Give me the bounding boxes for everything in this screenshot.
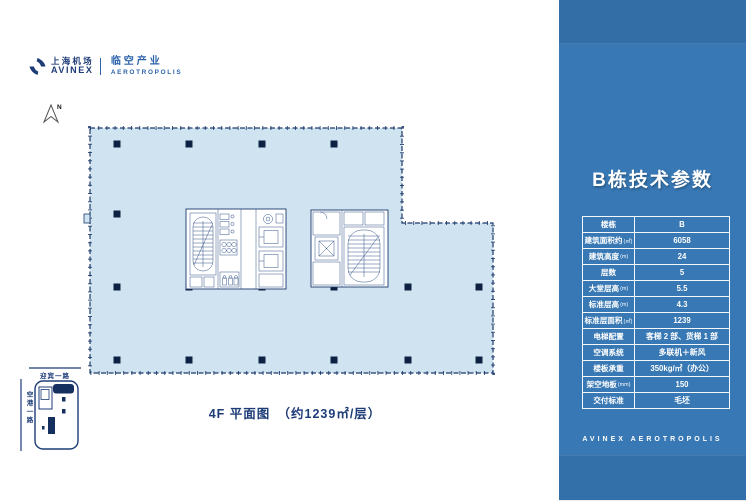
spec-value: 4.3 bbox=[635, 297, 729, 312]
spec-label: 标准层面积(㎡) bbox=[583, 313, 635, 328]
spec-row: 大堂层高(m)5.5 bbox=[583, 281, 729, 297]
spec-value: B bbox=[635, 217, 729, 232]
spec-label: 建筑高度(m) bbox=[583, 249, 635, 264]
core-right bbox=[311, 210, 388, 287]
spec-label: 架空地板(mm) bbox=[583, 377, 635, 392]
panel-top-band bbox=[559, 0, 746, 44]
brand-division-en: AEROTROPOLIS bbox=[111, 70, 183, 77]
brand-logo: 上海机场 AVINEX 临空产业 AEROTROPOLIS bbox=[28, 57, 182, 76]
spec-row: 架空地板(mm)150 bbox=[583, 377, 729, 393]
spec-label: 建筑面积约(㎡) bbox=[583, 233, 635, 248]
north-label: N bbox=[57, 104, 62, 111]
spec-unit: (mm) bbox=[618, 382, 631, 388]
spec-unit: (m) bbox=[620, 302, 628, 308]
floor-plan bbox=[80, 115, 500, 385]
spec-label: 楼栋 bbox=[583, 217, 635, 232]
avinex-diamond-icon bbox=[28, 57, 47, 76]
spec-row: 层数5 bbox=[583, 265, 729, 281]
spec-label: 交付标准 bbox=[583, 393, 635, 408]
spec-row: 电梯配置客梯 2 部、货梯 1 部 bbox=[583, 329, 729, 345]
building-c-block bbox=[48, 417, 55, 434]
entrance-notch bbox=[84, 214, 90, 223]
spec-unit: (㎡) bbox=[623, 317, 632, 325]
north-arrow-icon: N bbox=[36, 99, 66, 134]
spec-row: 建筑高度(m)24 bbox=[583, 249, 729, 265]
spec-row: 标准层面积(㎡)1239 bbox=[583, 313, 729, 329]
core-left bbox=[186, 209, 286, 289]
panel-bottom-band bbox=[559, 455, 746, 501]
spec-value: 24 bbox=[635, 249, 729, 264]
spec-value: 150 bbox=[635, 377, 729, 392]
building-b-highlight bbox=[53, 384, 74, 394]
spec-value: 5 bbox=[635, 265, 729, 280]
spec-row: 楼板承重350kg/㎡（办公） bbox=[583, 361, 729, 377]
road-top-label: 迎宾一路 bbox=[30, 370, 80, 380]
plan-caption: 4F 平面图 （约1239㎡/层） bbox=[130, 403, 460, 422]
spec-row: 建筑面积约(㎡)6058 bbox=[583, 233, 729, 249]
spec-value: 6058 bbox=[635, 233, 729, 248]
spec-label: 电梯配置 bbox=[583, 329, 635, 344]
spec-unit: (m) bbox=[620, 286, 628, 292]
spec-label: 标准层高(m) bbox=[583, 297, 635, 312]
spec-value: 1239 bbox=[635, 313, 729, 328]
spec-label: 大堂层高(m) bbox=[583, 281, 635, 296]
panel-footer: AVINEX AEROTROPOLIS bbox=[559, 436, 746, 443]
floor-slab bbox=[90, 128, 493, 373]
spec-unit: (m) bbox=[620, 254, 628, 260]
spec-unit: (㎡) bbox=[623, 237, 632, 245]
brand-en-name: AVINEX bbox=[51, 66, 94, 75]
spec-row: 楼栋B bbox=[583, 217, 729, 233]
spec-panel: B栋技术参数 楼栋B建筑面积约(㎡)6058建筑高度(m)24层数5大堂层高(m… bbox=[559, 0, 746, 500]
spec-row: 标准层高(m)4.3 bbox=[583, 297, 729, 313]
spec-value: 5.5 bbox=[635, 281, 729, 296]
site-map: 迎宾一路 空港一路 bbox=[14, 360, 84, 460]
road-left-label: 空港一路 bbox=[23, 391, 33, 425]
spec-value: 多联机＋新风 bbox=[635, 345, 729, 360]
spec-row: 空调系统多联机＋新风 bbox=[583, 345, 729, 361]
spec-table: 楼栋B建筑面积约(㎡)6058建筑高度(m)24层数5大堂层高(m)5.5标准层… bbox=[582, 216, 730, 409]
spec-value: 350kg/㎡（办公） bbox=[635, 361, 729, 376]
spec-label: 楼板承重 bbox=[583, 361, 635, 376]
spec-value: 客梯 2 部、货梯 1 部 bbox=[635, 329, 729, 344]
spec-label: 空调系统 bbox=[583, 345, 635, 360]
logo-divider bbox=[100, 58, 101, 75]
spec-value: 毛坯 bbox=[635, 393, 729, 408]
panel-title: B栋技术参数 bbox=[559, 165, 746, 192]
brand-division-cn: 临空产业 bbox=[111, 57, 183, 68]
spec-label: 层数 bbox=[583, 265, 635, 280]
spec-row: 交付标准毛坯 bbox=[583, 393, 729, 409]
